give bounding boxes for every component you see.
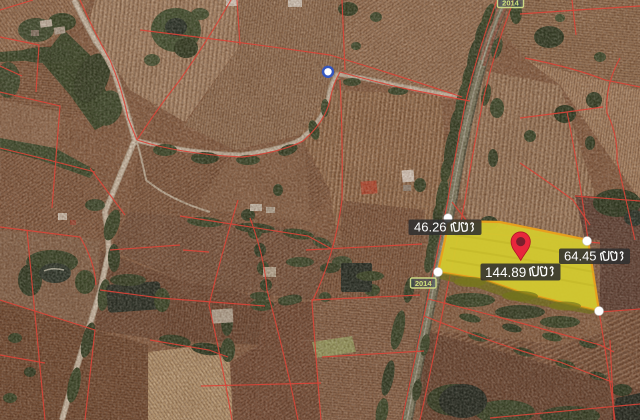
svg-text:2014: 2014: [502, 0, 520, 8]
svg-text:64.45: 64.45: [564, 249, 597, 264]
svg-text:2014: 2014: [415, 279, 433, 288]
svg-text:46.26: 46.26: [414, 220, 447, 235]
svg-text:144.89: 144.89: [485, 265, 526, 280]
